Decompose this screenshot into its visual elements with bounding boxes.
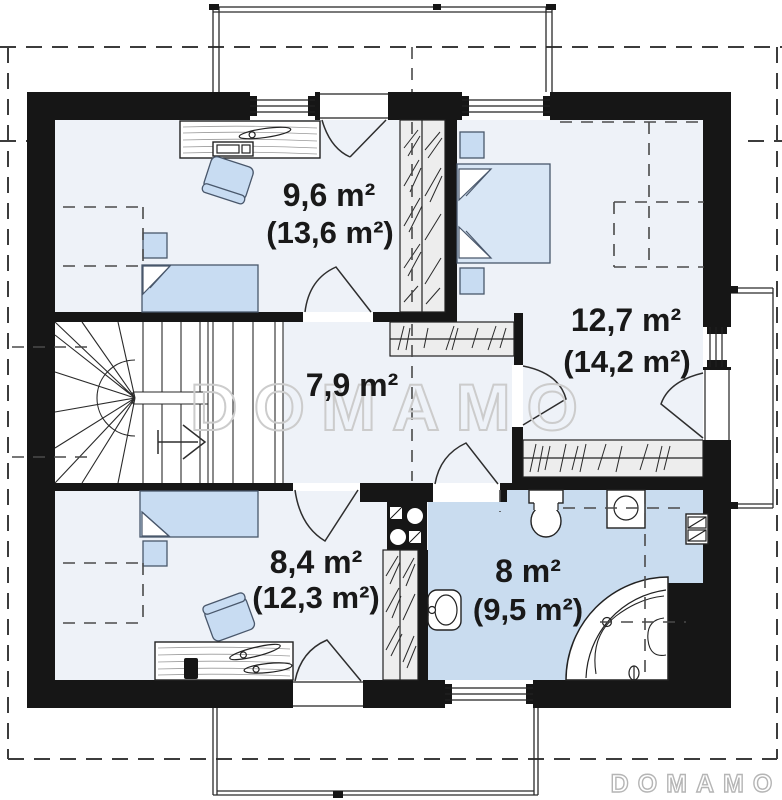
- label-bathroom-area: 8 m²: [495, 553, 561, 589]
- nightstand-top: [460, 132, 484, 158]
- label-room-top-left-area: 9,6 m²: [283, 177, 375, 213]
- label-room-top-right-area: 12,7 m²: [571, 302, 681, 338]
- closet-bottom-vertical: [383, 550, 418, 680]
- label-bathroom-total: (9,5 m²): [473, 592, 583, 627]
- desk: [155, 641, 293, 680]
- closet-hall: [390, 322, 514, 356]
- floor-plan-page: DOMAMO DOMAMO 9,6 m² (13,6 m²) 12,7 m² (…: [0, 0, 782, 800]
- label-room-bottom-left-area: 8,4 m²: [270, 544, 362, 580]
- washing-machine: [607, 490, 645, 528]
- closet-top-vertical: [400, 120, 445, 312]
- single-bed: [142, 265, 258, 312]
- floor-plan-canvas: DOMAMO DOMAMO 9,6 m² (13,6 m²) 12,7 m² (…: [0, 0, 782, 800]
- label-room-bottom-left-total: (12,3 m²): [252, 580, 379, 615]
- double-bed: [457, 164, 550, 263]
- nightstand: [143, 233, 167, 258]
- window-top-left: [250, 92, 315, 120]
- window-top-right: [462, 92, 550, 120]
- single-bed: [140, 491, 258, 537]
- nightstand: [143, 541, 167, 566]
- monitor: [184, 658, 198, 679]
- desk: [180, 121, 320, 158]
- closet-bedroom: [523, 440, 703, 477]
- toilet: [529, 490, 563, 537]
- watermark-corner: DOMAMO: [611, 770, 782, 798]
- vent-box: [686, 514, 708, 544]
- label-room-top-left-total: (13,6 m²): [266, 215, 393, 250]
- nightstand-bottom: [460, 268, 484, 294]
- chimney-flue-block: [387, 502, 427, 550]
- sink: [428, 590, 461, 630]
- window-bathroom-bottom: [445, 680, 533, 708]
- label-hall-area: 7,9 m²: [306, 367, 398, 403]
- label-room-top-right-total: (14,2 m²): [563, 344, 690, 379]
- window-right-wall: [703, 327, 731, 367]
